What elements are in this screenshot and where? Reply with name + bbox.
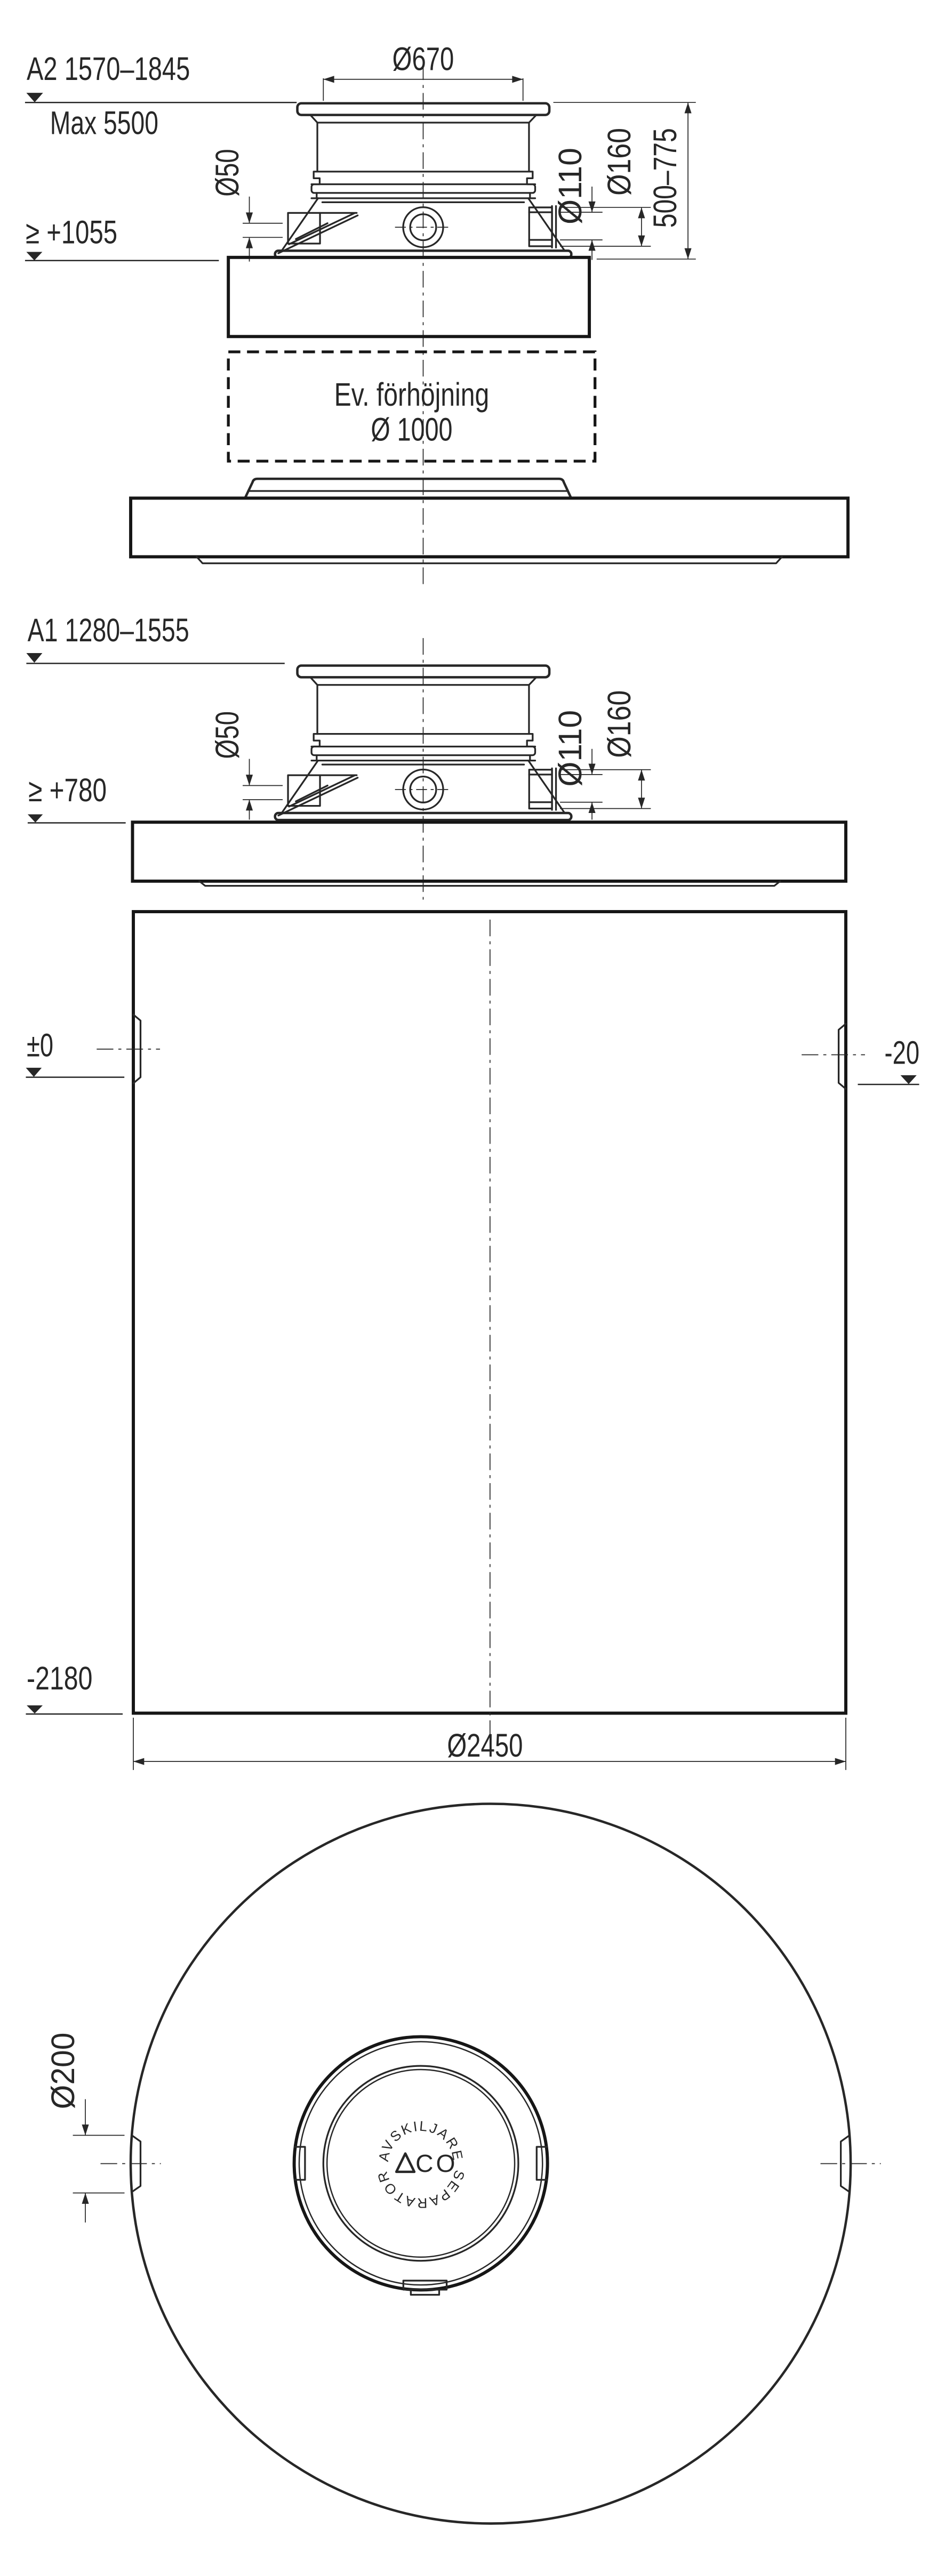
datum-invert-a2: ≥ +1055 [25,214,219,261]
elevation-view-a1: A1 1280–1555 Ø50 Ø110 Ø160 ≥ +780 [26,612,919,1770]
datum-bottom-level: -2180 [26,1660,123,1714]
vent-dia-label: Ø50 [209,711,245,759]
inlet-level-label: ±0 [27,1027,53,1063]
outlet-level-label: -20 [885,1034,920,1070]
invert-level-label: ≥ +1055 [26,214,117,250]
outlet-inner-label: Ø110 [552,148,588,224]
datum-triangle-marker [28,815,43,823]
max-depth-label: Max 5500 [50,105,158,141]
elevation-view-a2: A2 1570–1845 Max 5500 Ø670 Ø50 Ø110 Ø160 [25,41,848,586]
dim-vent-diameter: Ø50 [209,711,283,819]
datum-triangle-marker [26,252,42,261]
socket-dia-label: Ø200 [45,2033,81,2110]
manhole-cover-hub: AVSKILJARE SEPARATOR CO [294,2036,548,2295]
a1-label: A1 1280–1555 [28,612,189,648]
aco-logo-text: CO [415,2150,458,2177]
datum-triangle-marker [26,1068,42,1077]
datum-invert-a1: ≥ +780 [28,772,126,823]
datum-a1: A1 1280–1555 [26,612,284,663]
adjust-range-label: 500–775 [647,128,683,228]
dim-vent-diameter: Ø50 [209,149,283,261]
extension-dashed-box: Ev. förhöjning Ø 1000 [228,352,595,461]
vent-dia-label: Ø50 [209,149,245,196]
tank-collar [245,479,571,498]
a2-label: A2 1570–1845 [27,51,190,87]
bottom-level-label: -2180 [27,1660,92,1696]
datum-inlet-level: ±0 [26,1027,124,1077]
tank-slab [132,822,846,881]
datum-triangle-marker [26,653,42,663]
datum-triangle-marker [901,1075,917,1084]
extension-note-label: Ev. förhöjning [334,376,490,413]
dim-outlet-inner: Ø110 [552,710,603,820]
tank-body [97,912,865,1736]
datum-outlet-level: -20 [858,1034,920,1084]
outlet-inner-label: Ø110 [552,710,588,787]
outlet-outer-label: Ø160 [601,690,637,758]
plan-view: Ø200 AVSKILJARE SEPARATOR [45,1804,881,2524]
aco-logo: CO [396,2150,458,2177]
dim-cover-diameter: Ø670 [323,41,523,101]
outlet-outer-label: Ø160 [601,128,637,196]
cover-dia-label: Ø670 [393,41,454,77]
tank-circle [131,1804,851,2524]
datum-triangle-marker [27,1705,43,1713]
tank-dia-label: Ø2450 [447,1727,523,1764]
extension-dia-label: Ø 1000 [371,412,452,448]
invert-level-label: ≥ +780 [28,772,107,808]
datum-a2: A2 1570–1845 Max 5500 [25,51,297,141]
riser-ring [228,257,589,336]
aco-triangle-icon [396,2153,414,2171]
dim-socket-diameter: Ø200 [45,2033,124,2223]
datum-triangle-marker [26,93,43,102]
separator-technical-drawing: A2 1570–1845 Max 5500 Ø670 Ø50 Ø110 Ø160 [0,0,945,2576]
tank-slab [131,498,848,557]
